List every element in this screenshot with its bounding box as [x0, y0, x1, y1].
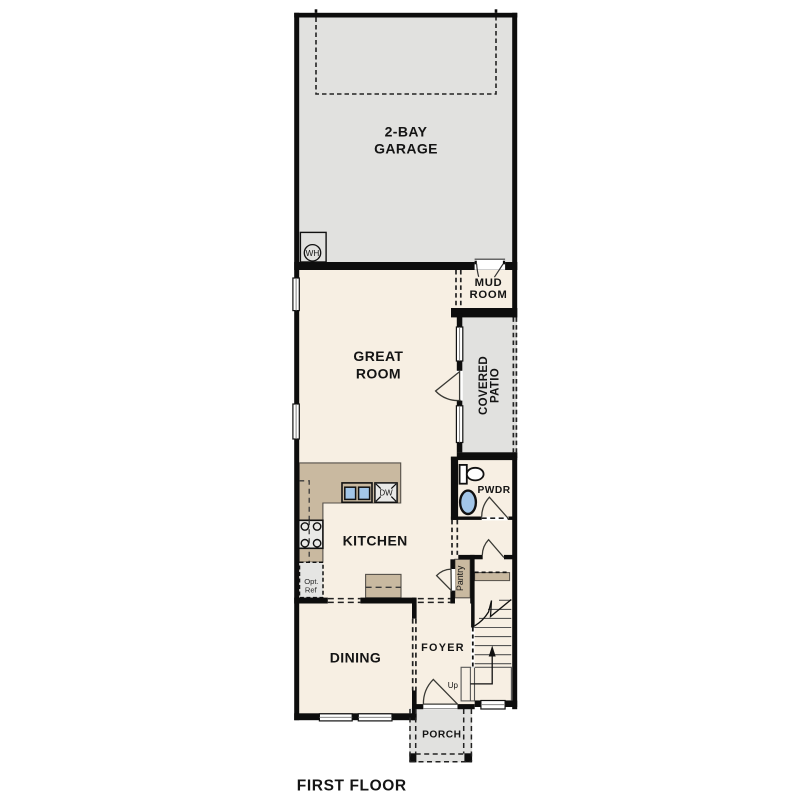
svg-text:Ref: Ref	[305, 586, 318, 595]
svg-text:Opt.: Opt.	[304, 577, 318, 586]
svg-text:GREAT: GREAT	[353, 348, 403, 364]
svg-text:PWDR: PWDR	[477, 485, 510, 496]
svg-text:Pantry: Pantry	[455, 565, 465, 591]
svg-text:2-BAY: 2-BAY	[385, 123, 428, 139]
svg-text:FOYER: FOYER	[421, 642, 465, 654]
svg-text:ROOM: ROOM	[470, 289, 508, 301]
svg-text:DW: DW	[379, 489, 393, 498]
svg-text:WH: WH	[306, 249, 320, 258]
svg-text:Up: Up	[448, 681, 459, 690]
svg-text:COVERED: COVERED	[478, 356, 490, 415]
svg-text:MUD: MUD	[475, 277, 503, 289]
svg-text:KITCHEN: KITCHEN	[343, 533, 408, 549]
svg-text:FIRST FLOOR: FIRST FLOOR	[297, 778, 407, 795]
svg-text:PORCH: PORCH	[422, 730, 461, 741]
svg-text:GARAGE: GARAGE	[374, 140, 438, 156]
svg-text:ROOM: ROOM	[356, 365, 401, 381]
svg-text:DINING: DINING	[330, 649, 381, 665]
svg-text:PATIO: PATIO	[490, 368, 502, 403]
